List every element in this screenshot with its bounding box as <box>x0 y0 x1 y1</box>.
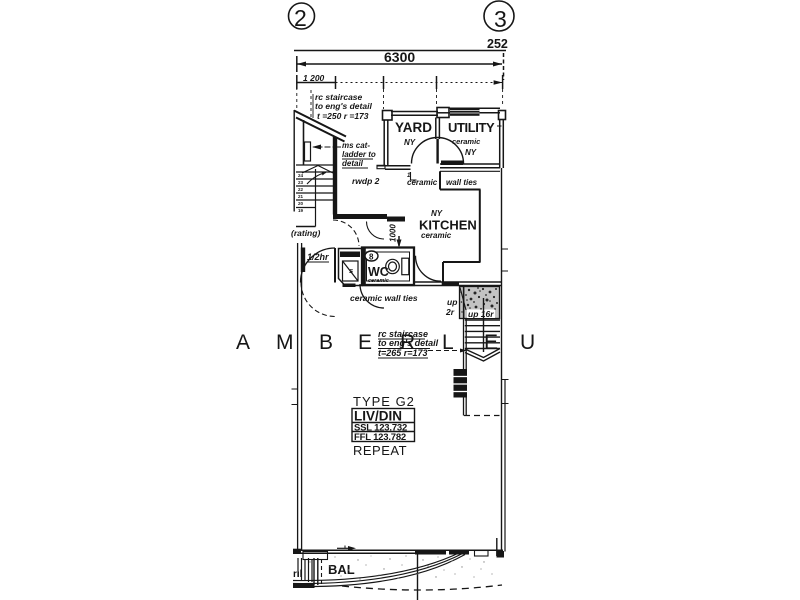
svg-text:20: 20 <box>298 201 304 206</box>
svg-text:19: 19 <box>298 208 304 213</box>
svg-text:ladder to: ladder to <box>342 150 376 159</box>
svg-text:1 200: 1 200 <box>303 73 325 83</box>
svg-text:s: s <box>349 266 353 275</box>
svg-text:detail: detail <box>342 159 364 168</box>
svg-text:(rating): (rating) <box>291 228 320 238</box>
svg-text:2r: 2r <box>445 307 455 317</box>
svg-text:U: U <box>520 331 535 354</box>
svg-text:ceramic: ceramic <box>368 278 389 284</box>
svg-text:ceramic wall ties: ceramic wall ties <box>350 293 418 303</box>
svg-text:1000: 1000 <box>389 224 398 242</box>
svg-text:rıl: rıl <box>293 569 303 580</box>
svg-text:BAL: BAL <box>328 562 355 577</box>
svg-text:8: 8 <box>369 253 374 262</box>
svg-text:ceramic: ceramic <box>407 178 438 187</box>
svg-text:t =250 r =173: t =250 r =173 <box>317 111 369 121</box>
svg-text:NY: NY <box>404 138 416 147</box>
svg-text:6300: 6300 <box>384 49 415 65</box>
svg-text:to eng's detail: to eng's detail <box>315 101 372 111</box>
svg-text:ceramic: ceramic <box>452 137 481 146</box>
svg-text:1/2hr: 1/2hr <box>307 252 329 262</box>
svg-text:FFL 123.782: FFL 123.782 <box>354 432 406 443</box>
svg-text:t=265 r=173: t=265 r=173 <box>378 348 428 358</box>
svg-text:3: 3 <box>494 6 507 32</box>
svg-text:ms cat-: ms cat- <box>342 141 370 150</box>
svg-text:REPEAT: REPEAT <box>353 443 407 458</box>
svg-text:21: 21 <box>298 194 304 199</box>
svg-text:UTILITY: UTILITY <box>448 120 495 135</box>
svg-text:wall ties: wall ties <box>446 178 478 187</box>
svg-text:M: M <box>276 331 294 354</box>
svg-text:24: 24 <box>298 173 304 178</box>
svg-text:YARD: YARD <box>395 120 432 135</box>
svg-text:ceramic: ceramic <box>421 231 452 240</box>
svg-text:B: B <box>319 331 333 354</box>
svg-text:E: E <box>358 331 372 354</box>
svg-text:up: up <box>447 297 457 307</box>
svg-text:A: A <box>236 331 250 354</box>
svg-text:up 16r: up 16r <box>468 309 494 319</box>
svg-text:2: 2 <box>294 5 307 31</box>
svg-text:LIV/DIN: LIV/DIN <box>354 409 402 424</box>
svg-text:NY: NY <box>465 148 477 157</box>
svg-text:rwdp 2: rwdp 2 <box>352 176 380 186</box>
svg-text:TYPE G2: TYPE G2 <box>353 394 415 409</box>
svg-text:252: 252 <box>487 37 508 51</box>
svg-text:23: 23 <box>298 180 304 185</box>
svg-text:22: 22 <box>298 187 304 192</box>
